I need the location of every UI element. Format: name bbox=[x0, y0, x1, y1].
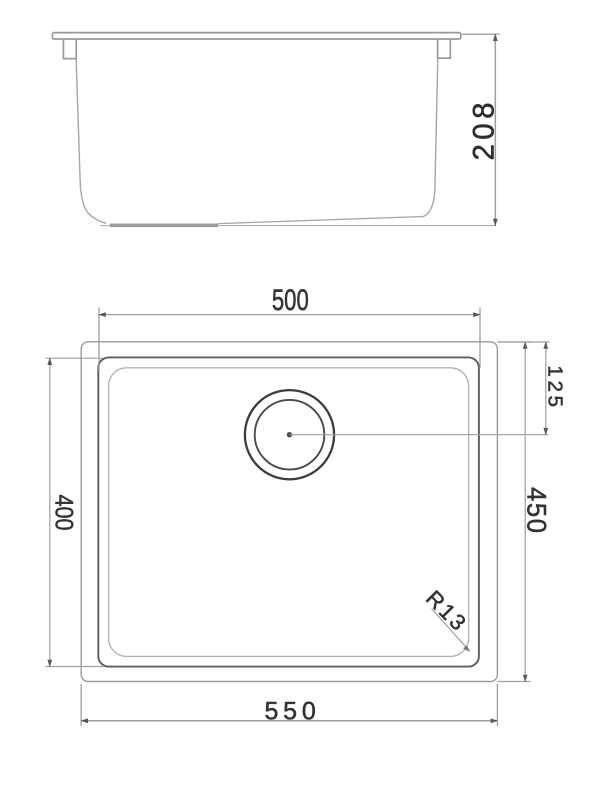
svg-text:450: 450 bbox=[522, 487, 553, 535]
svg-text:500: 500 bbox=[272, 283, 309, 317]
svg-text:550: 550 bbox=[264, 698, 320, 726]
svg-text:208: 208 bbox=[468, 98, 501, 160]
svg-text:400: 400 bbox=[50, 494, 78, 530]
svg-text:125: 125 bbox=[543, 365, 566, 410]
